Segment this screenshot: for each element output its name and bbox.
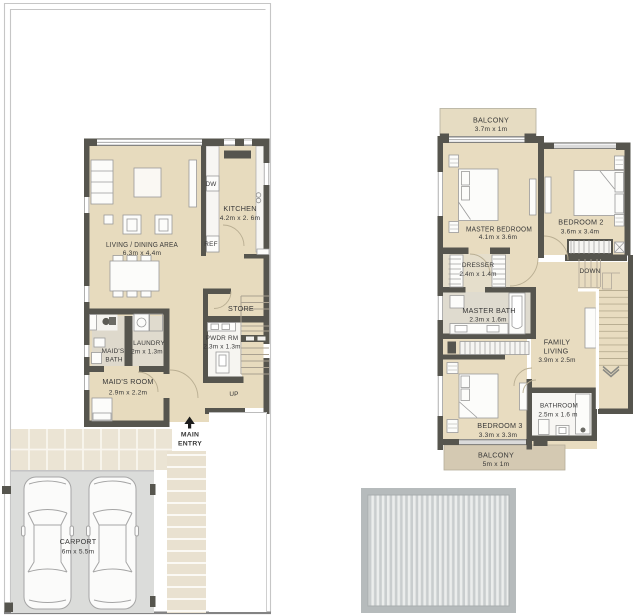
svg-text:4.2m x 2. 6m: 4.2m x 2. 6m	[220, 215, 261, 222]
svg-text:BALCONY: BALCONY	[473, 116, 509, 125]
svg-text:DW: DW	[205, 181, 217, 188]
svg-text:3.7m x 1m: 3.7m x 1m	[475, 126, 508, 133]
svg-text:REF: REF	[204, 241, 217, 248]
svg-text:ENTRY: ENTRY	[178, 441, 202, 448]
svg-text:PWDR RM: PWDR RM	[206, 335, 239, 342]
svg-text:LIVING / DINING AREA: LIVING / DINING AREA	[106, 240, 178, 249]
svg-text:2.3m x 1.3m: 2.3m x 1.3m	[203, 344, 240, 351]
svg-text:5m x 1m: 5m x 1m	[483, 461, 510, 468]
svg-text:MASTER BEDROOM: MASTER BEDROOM	[466, 225, 532, 234]
svg-text:FAMILY: FAMILY	[544, 338, 571, 347]
svg-text:BATH: BATH	[105, 357, 123, 364]
svg-text:2.3m x 1.6m: 2.3m x 1.6m	[469, 317, 506, 324]
svg-text:BEDROOM 2: BEDROOM 2	[558, 218, 603, 227]
svg-text:MASTER BATH: MASTER BATH	[462, 306, 515, 315]
svg-text:DRESSER: DRESSER	[462, 262, 494, 269]
svg-text:MAID'S ROOM: MAID'S ROOM	[102, 377, 153, 386]
svg-text:3.6m x 3.4m: 3.6m x 3.4m	[561, 229, 600, 236]
svg-text:2m x 1.3m: 2m x 1.3m	[131, 349, 163, 356]
svg-text:KITCHEN: KITCHEN	[223, 204, 256, 213]
svg-text:6.3m x 4.4m: 6.3m x 4.4m	[123, 250, 162, 257]
svg-text:2.9m x 2.2m: 2.9m x 2.2m	[109, 390, 148, 397]
svg-text:MAID'S: MAID'S	[102, 348, 125, 355]
svg-text:LIVING: LIVING	[543, 347, 568, 356]
svg-text:MAIN: MAIN	[181, 432, 199, 439]
svg-text:3.9m x 2.5m: 3.9m x 2.5m	[538, 357, 575, 364]
svg-text:2.5m x 1.6 m: 2.5m x 1.6 m	[538, 412, 577, 419]
svg-text:4.1m x 3.6m: 4.1m x 3.6m	[479, 234, 518, 241]
svg-text:6m x 5.5m: 6m x 5.5m	[62, 549, 95, 556]
svg-text:CARPORT: CARPORT	[60, 537, 97, 546]
svg-text:BATHROOM: BATHROOM	[540, 403, 578, 410]
svg-text:2.4m x 1.4m: 2.4m x 1.4m	[459, 271, 496, 278]
svg-text:BEDROOM 3: BEDROOM 3	[477, 421, 522, 430]
svg-text:DOWN: DOWN	[579, 268, 600, 275]
svg-text:3.3m x 3.3m: 3.3m x 3.3m	[479, 432, 518, 439]
svg-text:BALCONY: BALCONY	[478, 451, 514, 460]
svg-text:UP: UP	[229, 391, 238, 398]
svg-text:STORE: STORE	[228, 304, 254, 313]
svg-text:LAUNDRY: LAUNDRY	[133, 340, 165, 347]
